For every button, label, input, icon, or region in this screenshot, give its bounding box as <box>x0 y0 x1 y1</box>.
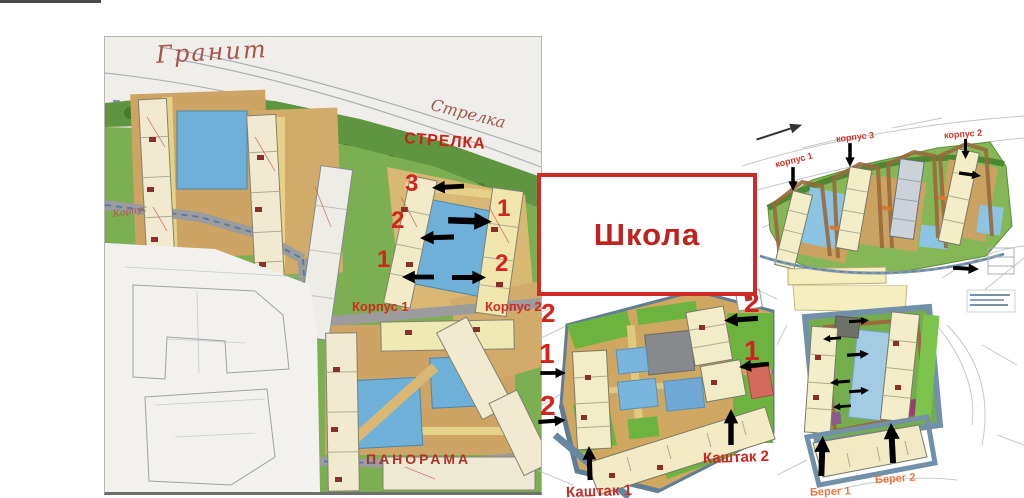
masterplan-collage: Гранит Стрелка СТРЕЛКА Корпус 3 2 1 1 2 … <box>0 0 1024 498</box>
building-number: 1 <box>497 197 510 221</box>
building-number: 2 <box>391 209 404 233</box>
red-arrow-up-icon <box>580 440 599 487</box>
korpus2-label: Корпус 2 <box>485 300 542 313</box>
orange-arrow-up-icon <box>881 420 903 467</box>
red-arrow-left-icon <box>429 178 468 196</box>
school-callout-box: Школа <box>537 173 757 296</box>
orange-arrow-right-icon <box>942 261 991 276</box>
top-edge-line <box>0 0 101 3</box>
red-arrow-down-icon <box>786 166 800 192</box>
kashtak2-label: Каштак 2 <box>703 449 769 466</box>
red-arrow-right-icon <box>536 412 567 430</box>
red-arrow-down-icon <box>959 138 972 160</box>
kashtak1-label: Каштак 1 <box>566 483 632 498</box>
panorama-label: ПАНОРАМА <box>366 452 471 466</box>
bereg1-label: Берег 1 <box>810 486 851 498</box>
orange-arrow-up-icon <box>811 434 833 479</box>
orange-arrow-right-icon <box>845 315 874 327</box>
orange-arrow-left-icon <box>820 333 845 344</box>
legend-block <box>967 290 1015 312</box>
korpus1-label: Корпус 1 <box>352 300 409 313</box>
red-arrow-up-icon <box>722 406 740 448</box>
red-arrow-right-icon <box>450 269 488 286</box>
school-label: Школа <box>594 217 700 253</box>
orange-arrow-right-icon <box>845 385 874 397</box>
orange-arrow-right-icon <box>843 348 874 361</box>
building-number: 1 <box>539 340 555 368</box>
building-number: 2 <box>541 300 555 326</box>
red-arrow-left-icon <box>415 228 460 247</box>
red-arrow-down-icon <box>843 142 857 168</box>
red-arrow-left-icon <box>721 310 760 330</box>
building-number: 2 <box>495 252 508 276</box>
granite-handwritten-label: Гранит <box>155 37 268 67</box>
red-arrow-left-icon <box>399 269 437 285</box>
building-number: 1 <box>377 248 390 272</box>
red-arrow-right-icon <box>539 366 567 380</box>
building-number: 3 <box>405 172 418 196</box>
